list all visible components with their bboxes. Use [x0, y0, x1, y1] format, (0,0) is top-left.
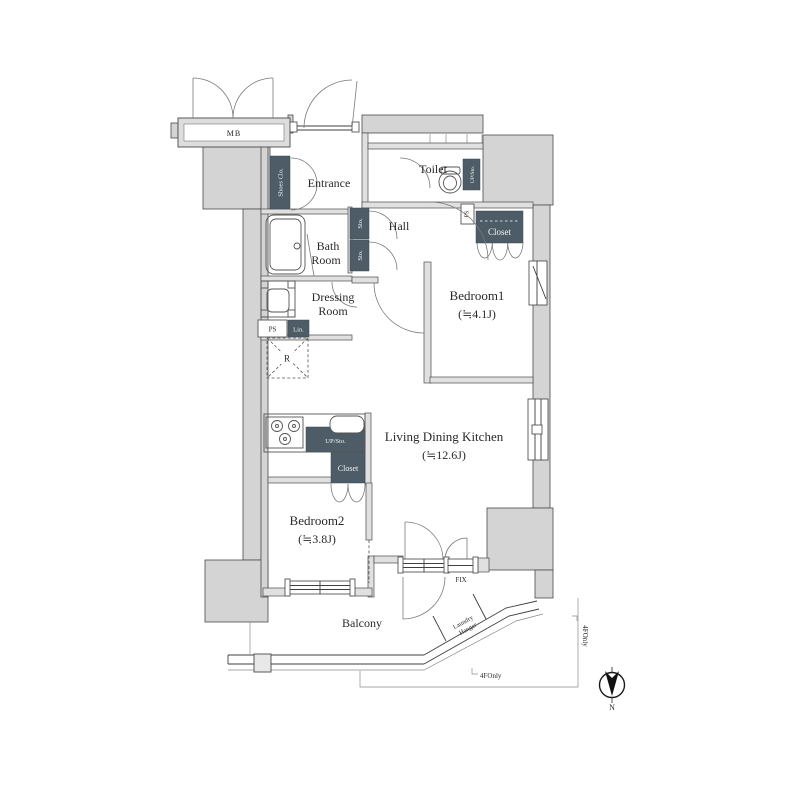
railing-post	[254, 654, 271, 672]
site-boundary: 4FOnly 4FOnly	[360, 598, 589, 687]
entrance-door	[290, 80, 359, 132]
bedroom2-south-window	[285, 579, 355, 596]
linen-label: Lin.	[293, 327, 304, 334]
floor-plan-page: MB Shoes Clo.	[0, 0, 785, 800]
bedroom2-label: Bedroom2	[290, 513, 345, 528]
laundry-hanger-label: Laundry Hanger	[452, 614, 479, 638]
closet2-doors	[331, 484, 348, 502]
closet1-doors	[477, 243, 492, 258]
shoes-closet-label: Shoes Clo.	[278, 168, 285, 197]
floor-note-side: 4FOnly	[581, 625, 589, 647]
fix-window: FIX	[448, 557, 478, 584]
kitchen-sink	[330, 416, 364, 433]
meter-box: MB	[178, 78, 290, 147]
bath-label-2: Room	[311, 253, 341, 267]
balcony-door-outswing	[403, 577, 445, 619]
ldk-size: (≒12.6J)	[422, 448, 466, 462]
bathtub	[266, 215, 305, 274]
hall-label: Hall	[389, 219, 410, 233]
floor-plan-drawing: MB Shoes Clo.	[0, 0, 785, 800]
bath-label-1: Bath	[317, 239, 340, 253]
refrigerator-label: R	[284, 354, 290, 364]
bedroom1-label: Bedroom1	[450, 288, 505, 303]
closet-bedroom1-label: Closet	[488, 227, 512, 237]
storage-upper-label: Sto.	[357, 218, 364, 229]
refrigerator-space: R	[267, 338, 308, 378]
balcony-label: Balcony	[342, 616, 382, 630]
storage-door-lower	[369, 242, 397, 270]
bedroom2-size: (≒3.8J)	[298, 532, 336, 546]
hall-ldk-door	[374, 283, 424, 333]
up-storage-kitchen-label: UP/Sto.	[325, 438, 346, 445]
closet-bedroom2-label: Closet	[338, 464, 359, 473]
fix-window-label: FIX	[455, 576, 466, 584]
balcony-door-large	[405, 522, 443, 560]
entrance-label: Entrance	[308, 176, 351, 190]
stove-burners	[272, 421, 300, 445]
bedroom1-size: (≒4.1J)	[458, 307, 496, 321]
compass-north-label: N	[609, 703, 615, 712]
ldk-east-window	[528, 399, 548, 460]
toilet-label: Toilet	[419, 162, 447, 176]
meter-box-label: MB	[227, 129, 241, 138]
dressing-label-2: Room	[318, 304, 348, 318]
balcony-railing: Laundry Hanger	[228, 594, 543, 672]
dressing-label-1: Dressing	[312, 290, 355, 304]
ldk-south-window	[398, 557, 449, 573]
ldk-label: Living Dining Kitchen	[385, 429, 504, 444]
compass: N	[600, 667, 625, 712]
laundry-hanger-mark	[433, 616, 446, 641]
pipe-space-dressing-label: PS	[269, 326, 277, 334]
up-storage-toilet-label: UP/Sto.	[470, 165, 476, 183]
laundry-hanger-mark	[473, 594, 486, 619]
storage-lower-label: Sto.	[357, 250, 364, 261]
floor-note-bottom: 4FOnly	[480, 672, 502, 680]
bedroom1-east-window	[529, 261, 547, 305]
